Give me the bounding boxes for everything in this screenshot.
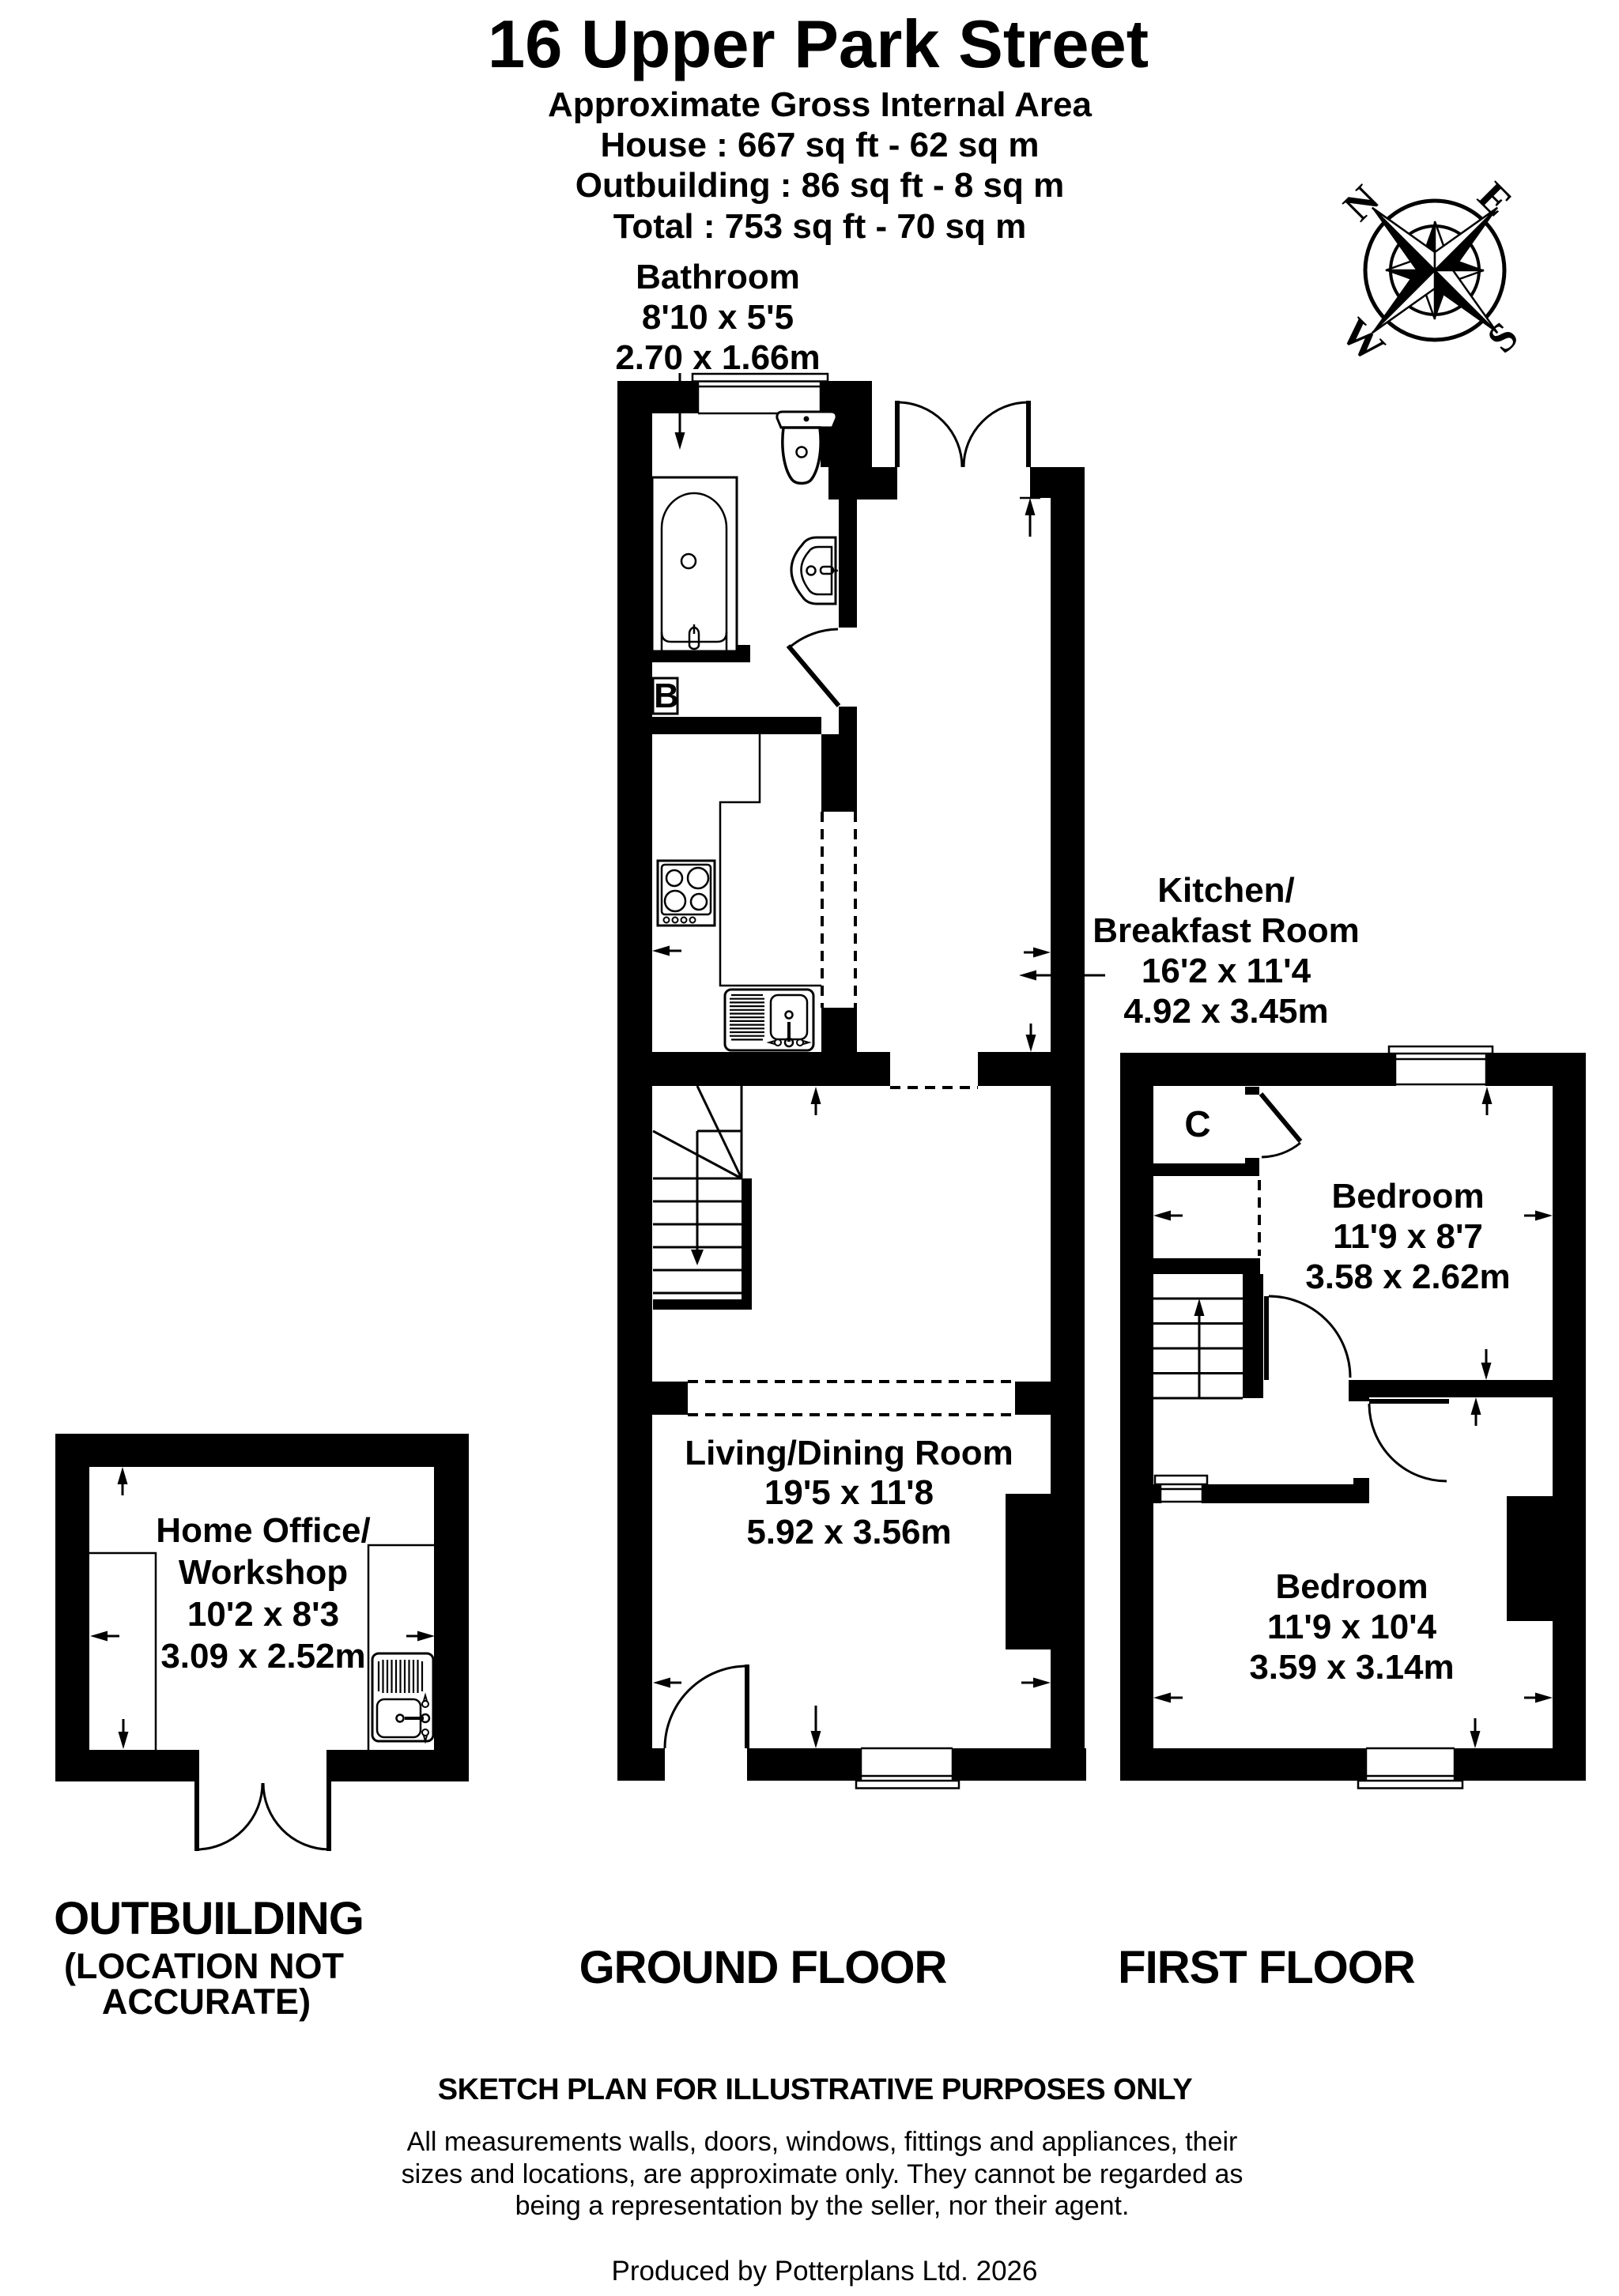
svg-text:Breakfast Room: Breakfast Room xyxy=(1093,911,1359,950)
svg-text:10'2 x 8'3: 10'2 x 8'3 xyxy=(187,1595,339,1634)
svg-text:3.59 x 3.14m: 3.59 x 3.14m xyxy=(1249,1648,1454,1687)
svg-text:GROUND FLOOR: GROUND FLOOR xyxy=(579,1942,947,1993)
svg-text:Home Office/: Home Office/ xyxy=(156,1511,370,1550)
svg-text:11'9 x 10'4: 11'9 x 10'4 xyxy=(1267,1608,1437,1646)
svg-text:Outbuilding : 86 sq ft - 8 sq: Outbuilding : 86 sq ft - 8 sq m xyxy=(576,166,1064,205)
svg-text:Kitchen/: Kitchen/ xyxy=(1157,871,1295,910)
svg-text:16'2 x 11'4: 16'2 x 11'4 xyxy=(1142,952,1311,990)
svg-text:SKETCH PLAN FOR ILLUSTRATIVE P: SKETCH PLAN FOR ILLUSTRATIVE PURPOSES ON… xyxy=(438,2073,1193,2106)
svg-text:4.92 x 3.45m: 4.92 x 3.45m xyxy=(1123,992,1328,1031)
svg-text:Bedroom: Bedroom xyxy=(1275,1567,1428,1606)
svg-text:OUTBUILDING: OUTBUILDING xyxy=(54,1893,364,1944)
svg-text:16 Upper Park Street: 16 Upper Park Street xyxy=(488,7,1149,82)
svg-text:2.70 x 1.66m: 2.70 x 1.66m xyxy=(615,338,820,377)
svg-text:House : 667 sq ft - 62 sq m: House : 667 sq ft - 62 sq m xyxy=(600,126,1039,164)
svg-text:3.58 x 2.62m: 3.58 x 2.62m xyxy=(1305,1257,1510,1296)
svg-text:Bedroom: Bedroom xyxy=(1331,1177,1484,1216)
svg-text:19'5 x 11'8: 19'5 x 11'8 xyxy=(764,1473,934,1512)
svg-text:FIRST FLOOR: FIRST FLOOR xyxy=(1118,1942,1415,1993)
svg-text:being a representation by the: being a representation by the seller, no… xyxy=(515,2191,1130,2221)
svg-text:Bathroom: Bathroom xyxy=(636,258,800,296)
svg-text:Workshop: Workshop xyxy=(179,1553,348,1592)
svg-text:8'10 x 5'5: 8'10 x 5'5 xyxy=(642,298,794,337)
svg-text:Living/Dining Room: Living/Dining Room xyxy=(685,1434,1013,1472)
svg-text:sizes and locations, are appro: sizes and locations, are approximate onl… xyxy=(402,2159,1243,2189)
svg-text:3.09 x 2.52m: 3.09 x 2.52m xyxy=(160,1637,365,1676)
svg-text:(LOCATION NOT: (LOCATION NOT xyxy=(64,1946,344,1986)
svg-text:All measurements walls, doors,: All measurements walls, doors, windows, … xyxy=(407,2127,1238,2157)
svg-text:5.92 x 3.56m: 5.92 x 3.56m xyxy=(746,1513,951,1551)
svg-text:Total : 753 sq ft - 70 sq m: Total : 753 sq ft - 70 sq m xyxy=(613,207,1026,246)
svg-text:C: C xyxy=(1184,1103,1210,1144)
svg-text:Approximate Gross Internal Are: Approximate Gross Internal Area xyxy=(548,85,1092,124)
svg-text:ACCURATE): ACCURATE) xyxy=(102,1981,311,2022)
svg-text:11'9 x 8'7: 11'9 x 8'7 xyxy=(1333,1217,1483,1256)
svg-text:Produced by Potterplans Ltd. 2: Produced by Potterplans Ltd. 2026 xyxy=(612,2256,1038,2287)
svg-text:B: B xyxy=(654,677,679,715)
